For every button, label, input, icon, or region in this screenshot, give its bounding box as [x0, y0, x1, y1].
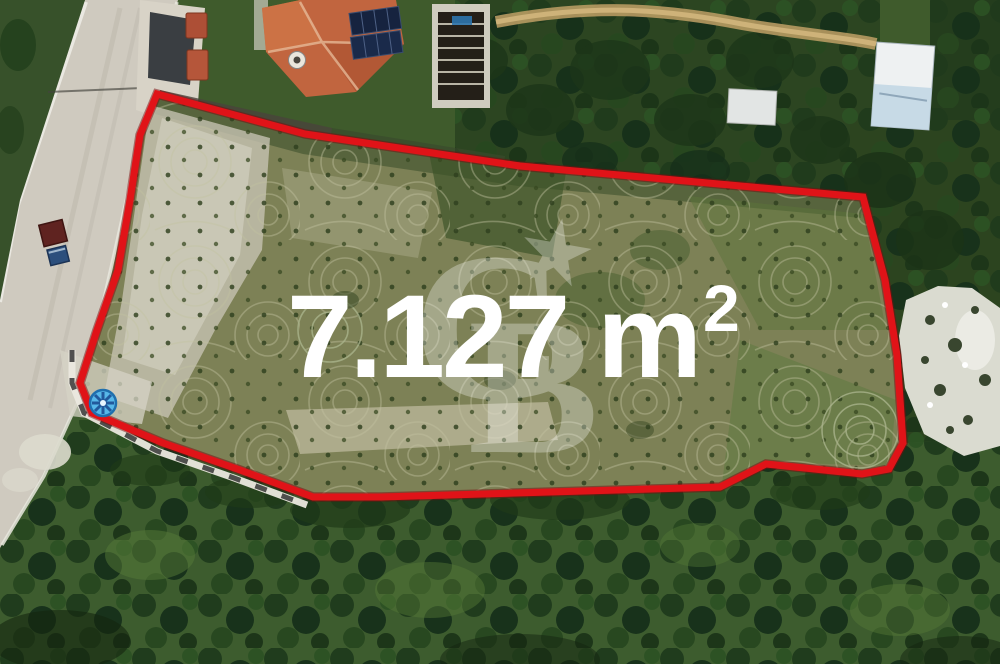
outbuilding-roof — [186, 13, 207, 38]
area-value: 7.127 m — [287, 271, 699, 403]
trellis-structure — [432, 4, 490, 108]
outbuilding-roof — [187, 50, 208, 80]
area-label: 7.127 m 2 — [287, 271, 740, 403]
aerial-photo-scene: C B 7.127 m 2 — [0, 0, 1000, 664]
area-superscript: 2 — [703, 271, 740, 345]
shed-roof — [727, 89, 777, 125]
location-marker-icon — [90, 390, 116, 416]
building-blue-roof — [871, 42, 935, 130]
aerial-photo: C B 7.127 m 2 — [0, 0, 1000, 664]
pool-blue — [452, 16, 472, 25]
